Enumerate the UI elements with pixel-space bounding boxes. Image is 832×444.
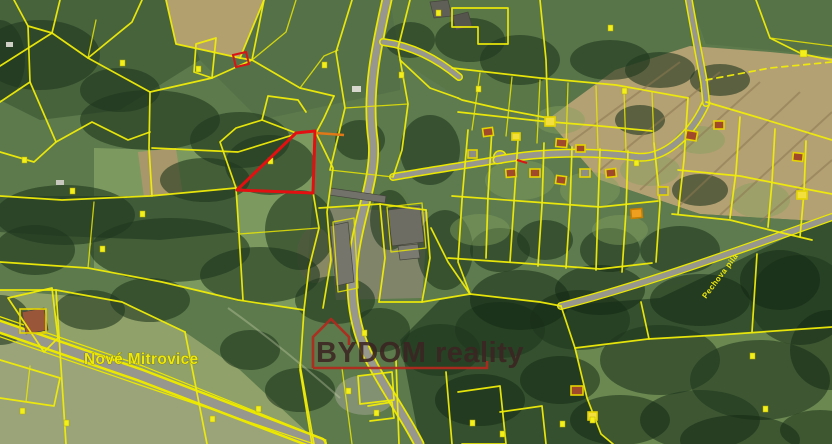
aerial-map-canvas: Nové Mitrovice Pechova pila BYDOM realit… [0, 0, 832, 444]
watermark-text: BYDOM reality [316, 337, 524, 369]
settlement-label: Nové Mitrovice [84, 351, 199, 368]
cadastral-map-view: Nové Mitrovice Pechova pila BYDOM realit… [0, 0, 832, 444]
